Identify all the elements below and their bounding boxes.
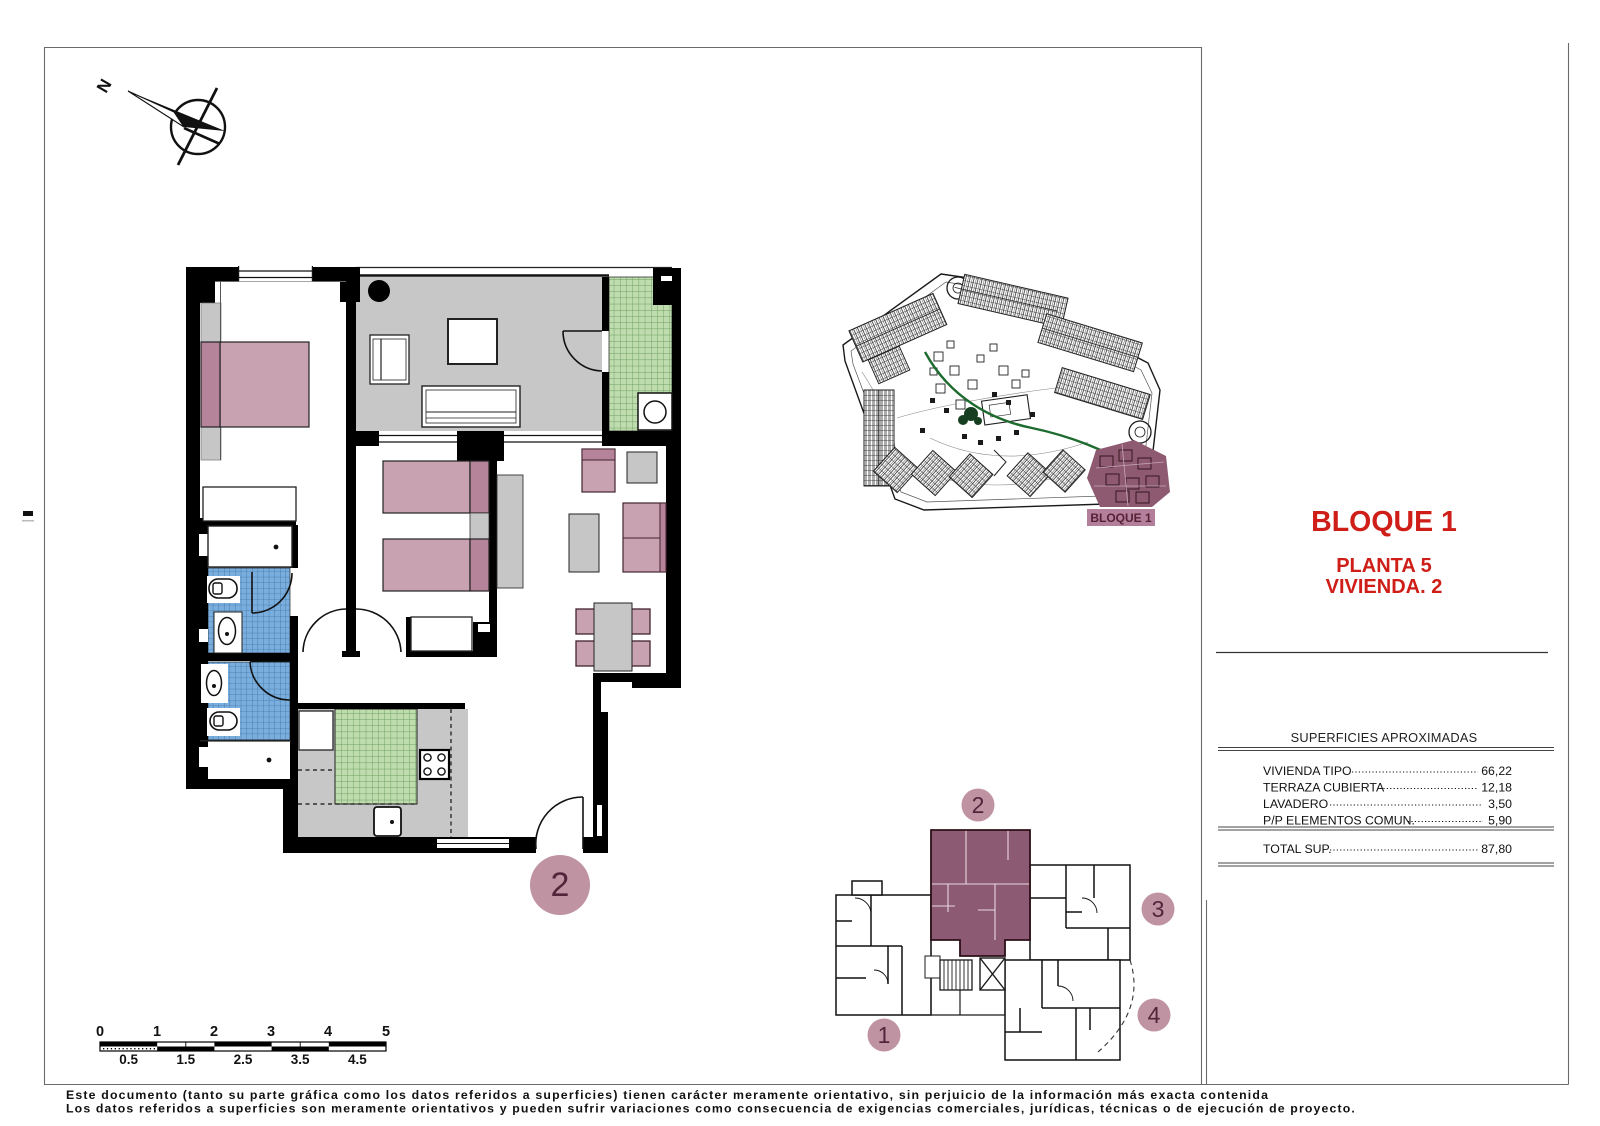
svg-text:TERRAZA CUBIERTA: TERRAZA CUBIERTA [1263,781,1385,795]
svg-text:2: 2 [551,866,570,904]
svg-text:3: 3 [267,1024,275,1040]
svg-text:2.5: 2.5 [234,1052,253,1067]
svg-text:SUPERFICIES APROXIMADAS: SUPERFICIES APROXIMADAS [1291,730,1478,745]
svg-text:3: 3 [1152,896,1165,922]
svg-text:Este documento (tanto su parte: Este documento (tanto su parte gráfica c… [66,1088,1269,1102]
svg-text:4.5: 4.5 [348,1052,367,1067]
svg-text:4: 4 [1148,1002,1161,1028]
svg-text:TOTAL SUP.: TOTAL SUP. [1263,842,1332,856]
svg-text:3.5: 3.5 [291,1052,310,1067]
svg-text:3,50: 3,50 [1488,797,1512,811]
svg-text:0: 0 [96,1024,104,1040]
svg-text:2: 2 [972,792,985,818]
svg-text:12,18: 12,18 [1481,781,1512,795]
svg-text:1.5: 1.5 [176,1052,195,1067]
svg-text:66,22: 66,22 [1481,764,1512,778]
svg-text:BLOQUE 1: BLOQUE 1 [1311,506,1457,538]
svg-text:PLANTA 5: PLANTA 5 [1336,555,1432,577]
svg-text:VIVIENDA TIPO: VIVIENDA TIPO [1263,764,1352,778]
svg-text:1: 1 [878,1022,891,1048]
svg-text:5,90: 5,90 [1488,814,1512,828]
svg-text:0.5: 0.5 [119,1052,138,1067]
svg-text:VIVIENDA. 2: VIVIENDA. 2 [1326,576,1443,598]
svg-text:87,80: 87,80 [1481,842,1512,856]
svg-text:LAVADERO: LAVADERO [1263,797,1328,811]
svg-text:P/P ELEMENTOS COMUN.: P/P ELEMENTOS COMUN. [1263,814,1415,828]
svg-text:1: 1 [153,1024,161,1040]
svg-text:2: 2 [210,1024,218,1040]
svg-text:BLOQUE 1: BLOQUE 1 [1090,511,1152,525]
svg-text:4: 4 [324,1024,332,1040]
svg-text:5: 5 [382,1024,390,1040]
svg-text:Los datos referidos a superfic: Los datos referidos a superficies son me… [66,1102,1356,1116]
